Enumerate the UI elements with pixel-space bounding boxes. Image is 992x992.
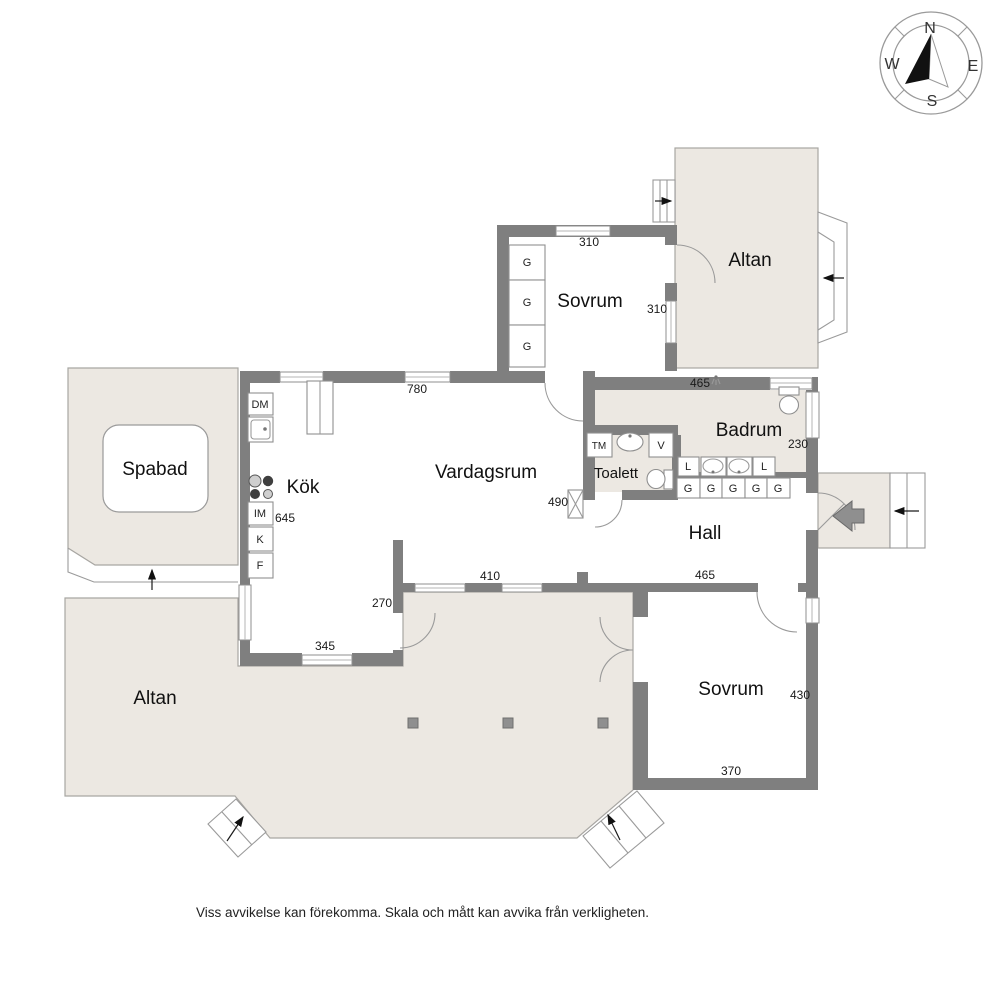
wall-segment bbox=[812, 377, 818, 390]
dim-label: 370 bbox=[721, 764, 741, 778]
wall-segment bbox=[798, 583, 818, 592]
wall-segment bbox=[622, 490, 678, 500]
bathroom-sink bbox=[701, 457, 726, 476]
wall-segment bbox=[583, 490, 595, 500]
wall-segment bbox=[665, 237, 677, 245]
room-label-toalett: Toalett bbox=[594, 465, 639, 482]
wall-segment bbox=[633, 682, 648, 778]
wall-segment bbox=[465, 583, 502, 592]
wall-segment bbox=[633, 778, 818, 790]
wardrobe-label: G bbox=[707, 483, 716, 495]
wall-segment bbox=[665, 283, 677, 301]
wardrobe-label: G bbox=[752, 483, 761, 495]
room-label-kok: Kök bbox=[287, 477, 320, 498]
dim-label: 310 bbox=[579, 235, 599, 249]
wardrobe-label: G bbox=[523, 297, 532, 309]
door-swing-bedroom2 bbox=[757, 592, 797, 632]
room-label-sovrum-bottom: Sovrum bbox=[698, 679, 763, 700]
compass-n: N bbox=[924, 20, 936, 37]
stove bbox=[249, 475, 273, 499]
wall-segment bbox=[393, 540, 403, 613]
room-label-vardagsrum: Vardagsrum bbox=[435, 462, 537, 483]
wall-segment bbox=[323, 371, 405, 383]
dim-label: 270 bbox=[372, 596, 392, 610]
compass-rose: N W E S bbox=[880, 12, 982, 114]
window bbox=[502, 584, 542, 592]
toilet bbox=[647, 470, 673, 490]
wall-segment bbox=[240, 371, 280, 383]
wall-segment bbox=[806, 530, 818, 592]
wall-pier bbox=[577, 572, 588, 583]
window bbox=[239, 585, 251, 640]
dim-label: 645 bbox=[275, 511, 295, 525]
wall-segment bbox=[497, 237, 509, 371]
fridge-label: K bbox=[256, 534, 264, 546]
kitchen-sink bbox=[248, 417, 273, 442]
linen-label: L bbox=[685, 461, 691, 473]
wardrobe-label: G bbox=[729, 483, 738, 495]
room-label-sovrum-top: Sovrum bbox=[557, 291, 622, 312]
dim-label: 465 bbox=[690, 376, 710, 390]
room-label-altan-top: Altan bbox=[728, 250, 771, 271]
room-label-badrum: Badrum bbox=[716, 420, 783, 441]
wall-segment bbox=[806, 592, 818, 598]
wc-sink bbox=[617, 433, 643, 451]
dim-label: 490 bbox=[548, 495, 568, 509]
kitchen-island bbox=[307, 381, 333, 434]
dishwasher-label: DM bbox=[251, 399, 268, 411]
fireplace bbox=[568, 490, 583, 518]
window bbox=[405, 372, 450, 382]
room-label-hall: Hall bbox=[689, 523, 722, 544]
room-label-altan-bottom: Altan bbox=[133, 688, 176, 709]
deck-post bbox=[408, 718, 418, 728]
dim-label: 230 bbox=[788, 437, 808, 451]
washing-machine-label: TM bbox=[592, 441, 606, 452]
wall-segment bbox=[593, 377, 770, 390]
wardrobe-label: G bbox=[523, 341, 532, 353]
dim-label: 780 bbox=[407, 382, 427, 396]
wall-segment bbox=[393, 650, 403, 666]
wardrobe-label: G bbox=[523, 257, 532, 269]
compass-s: S bbox=[927, 93, 938, 110]
door-swing-bedroom-living bbox=[545, 383, 583, 421]
floor-plan-svg: G G G DM IM K F TM bbox=[0, 0, 992, 992]
window bbox=[302, 655, 352, 665]
wall-segment bbox=[633, 592, 648, 617]
disclaimer-text: Viss avvikelse kan förekomma. Skala och … bbox=[196, 905, 649, 920]
wall-segment bbox=[542, 583, 758, 592]
decks bbox=[65, 148, 925, 868]
dim-label: 310 bbox=[647, 302, 667, 316]
window bbox=[415, 584, 465, 592]
freezer-label: F bbox=[257, 560, 264, 572]
dim-label: 465 bbox=[695, 568, 715, 582]
compass-e: E bbox=[968, 58, 979, 75]
wall-segment bbox=[240, 653, 302, 666]
bathroom-sink bbox=[727, 457, 752, 476]
dim-label: 410 bbox=[480, 569, 500, 583]
terrace-bottom-deck bbox=[65, 592, 633, 838]
deck-post bbox=[598, 718, 608, 728]
dim-label: 430 bbox=[790, 688, 810, 702]
deck-post bbox=[503, 718, 513, 728]
water-heater-label: V bbox=[657, 440, 665, 452]
window bbox=[806, 598, 819, 623]
compass-w: W bbox=[884, 56, 900, 73]
window bbox=[806, 392, 819, 438]
wardrobe-label: G bbox=[774, 483, 783, 495]
floor-plan-page: G G G DM IM K F TM bbox=[0, 0, 992, 992]
wall-segment bbox=[665, 343, 677, 371]
window bbox=[666, 301, 676, 343]
toilet bbox=[779, 387, 799, 414]
door-swing-toilet-room bbox=[595, 500, 622, 527]
room-label-spabad: Spabad bbox=[122, 459, 188, 480]
dim-label: 345 bbox=[315, 639, 335, 653]
wardrobe-label: G bbox=[684, 483, 693, 495]
wall-segment bbox=[450, 371, 545, 383]
microwave-label: IM bbox=[254, 508, 266, 520]
linen-label: L bbox=[761, 461, 767, 473]
